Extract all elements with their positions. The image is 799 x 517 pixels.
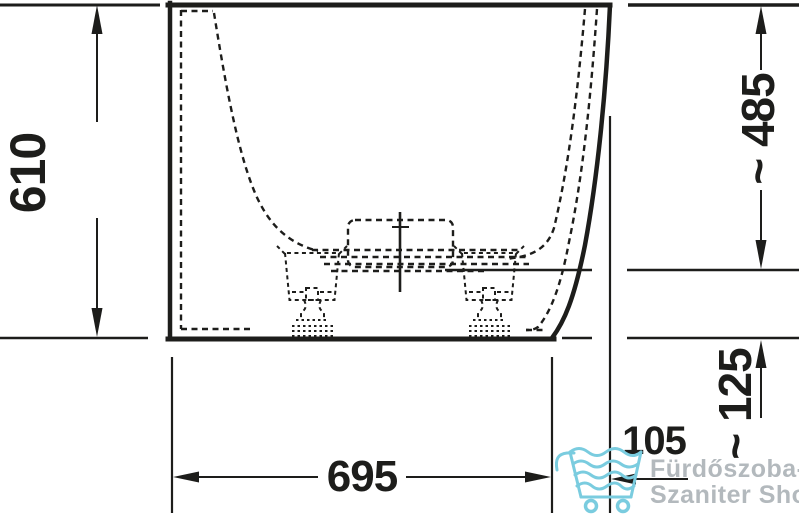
cart-wheel — [586, 501, 597, 512]
shopping-cart-icon — [556, 449, 641, 512]
watermark-text-line1: Fürdőszoba- — [650, 457, 799, 482]
watermark-text-line2: Szaniter Shop — [650, 483, 799, 508]
watermark-layer — [0, 0, 799, 517]
technical-drawing-canvas: 610 ~ 485 ~ 125 105 695 Fürdőszoba- Szan… — [0, 0, 799, 517]
cart-wheel — [618, 501, 629, 512]
